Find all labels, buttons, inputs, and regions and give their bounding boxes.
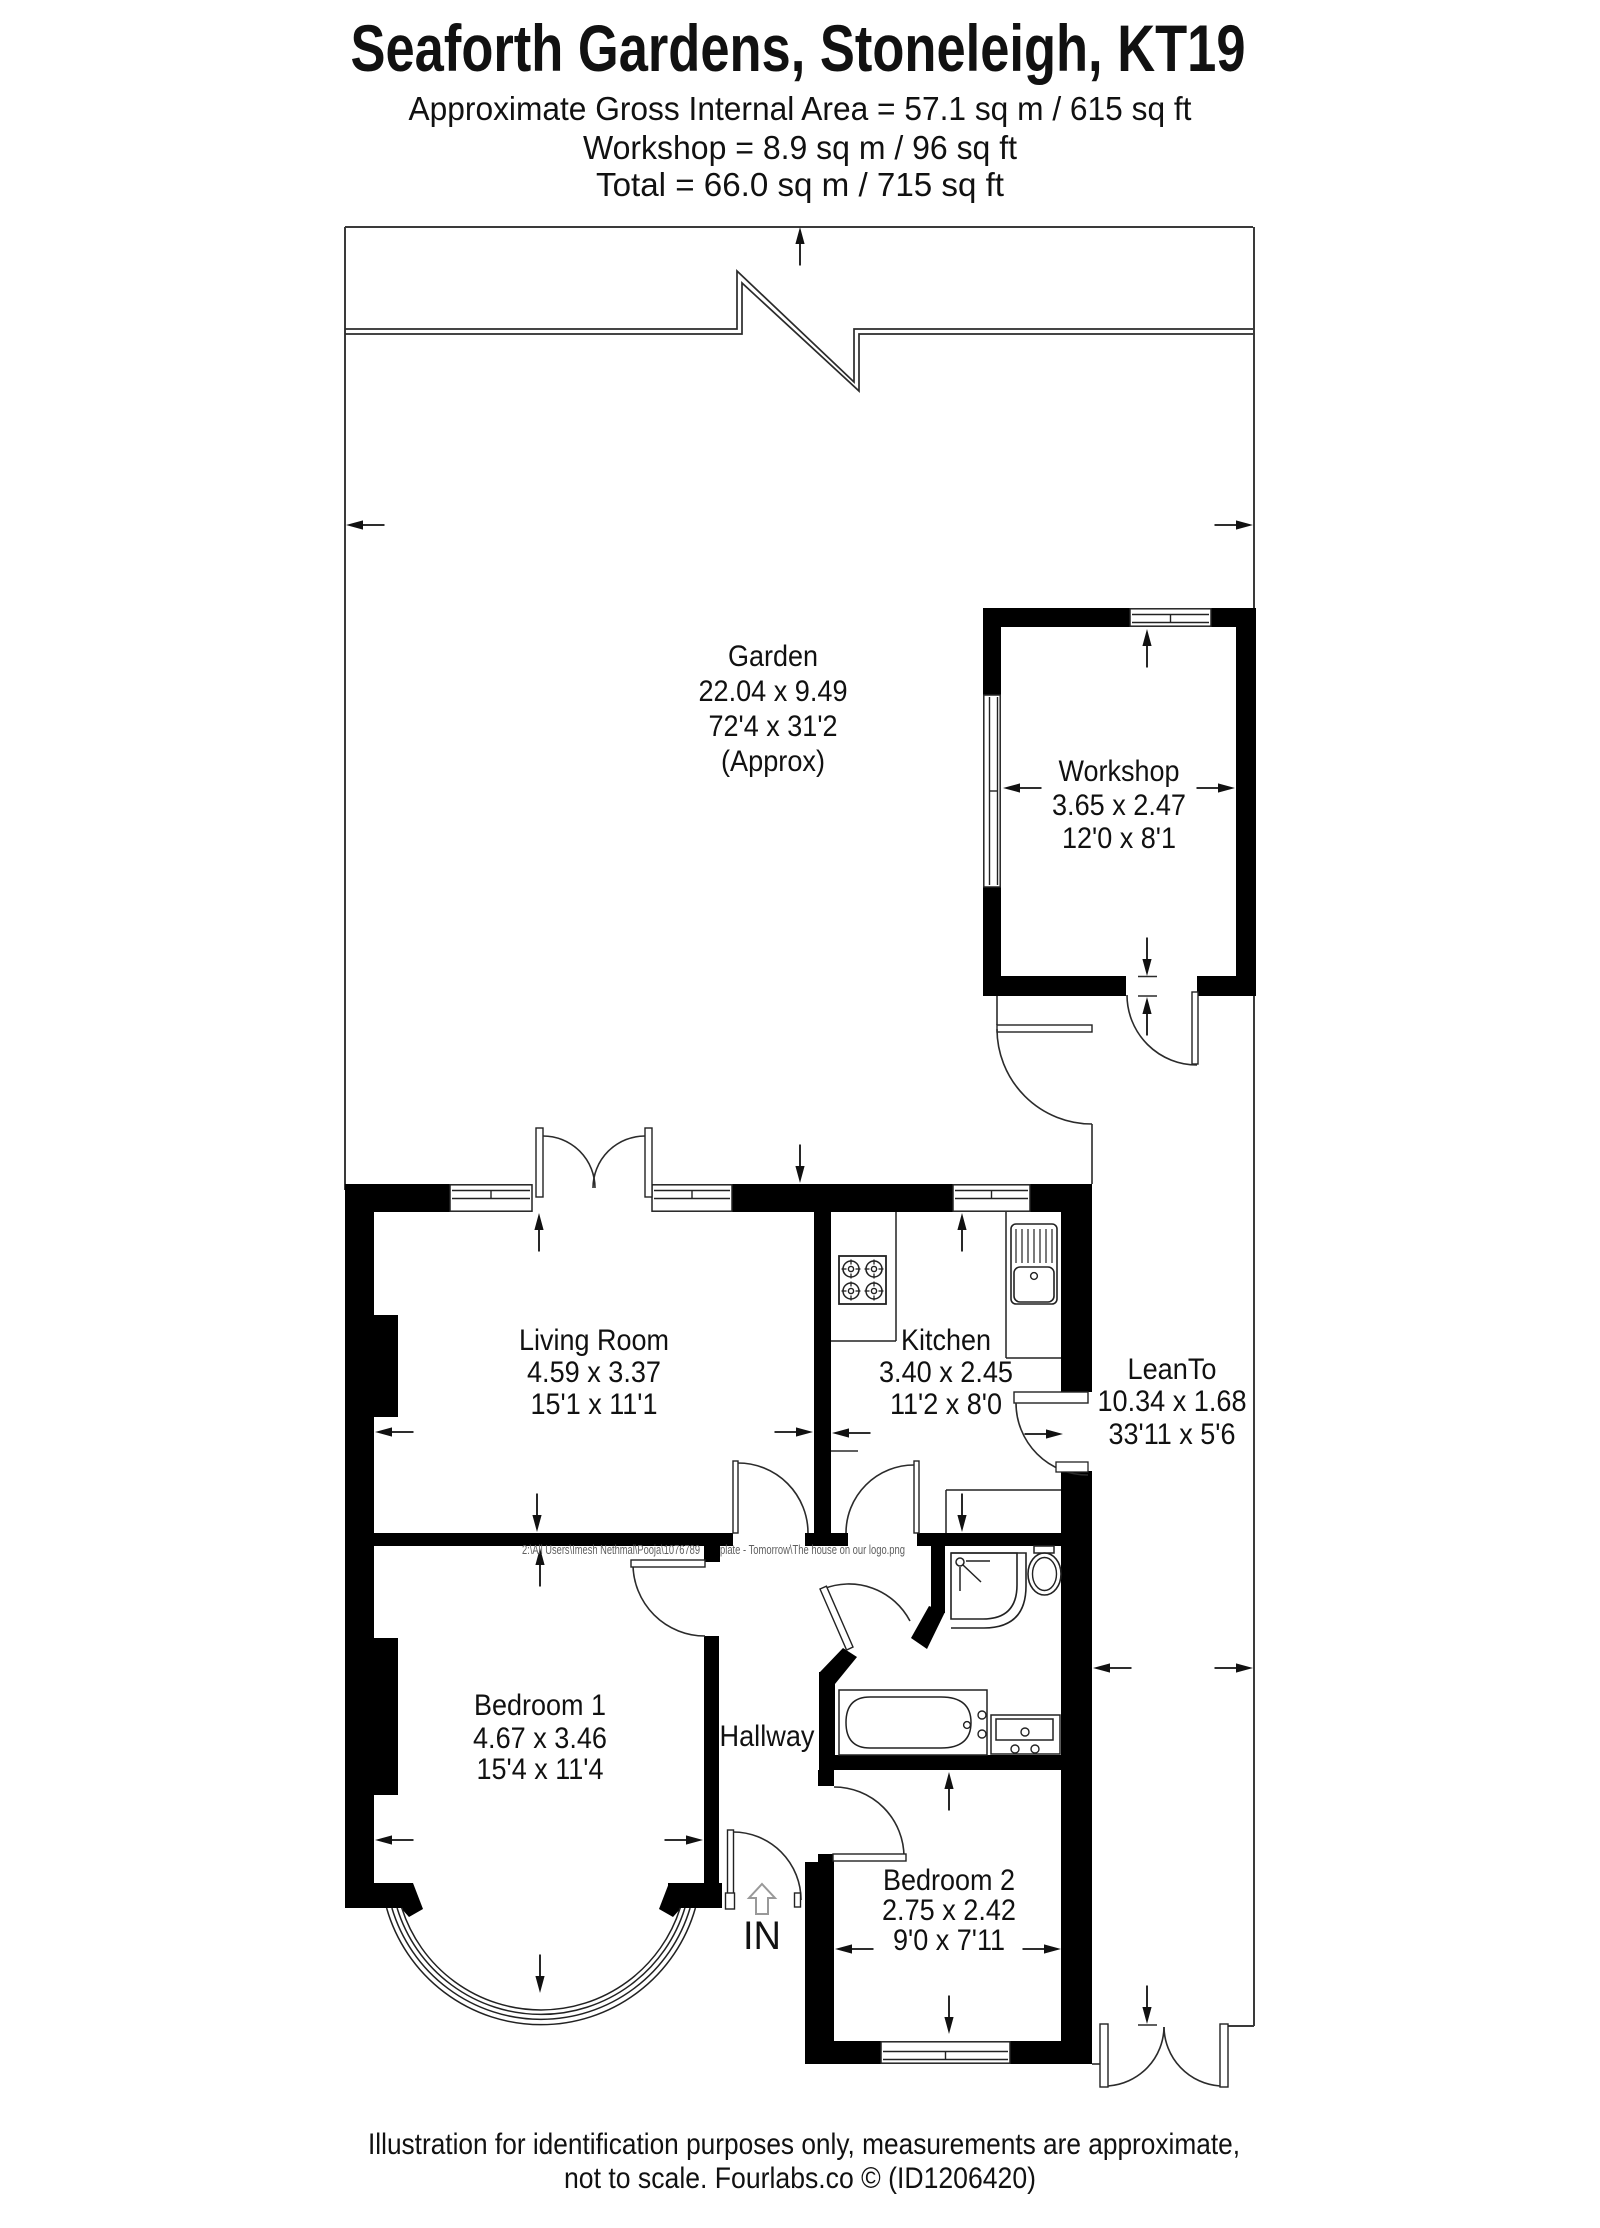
svg-text:Total = 66.0 sq m / 715 sq ft: Total = 66.0 sq m / 715 sq ft — [596, 166, 1004, 203]
svg-text:33'11 x 5'6: 33'11 x 5'6 — [1109, 1418, 1236, 1451]
svg-text:LeanTo: LeanTo — [1128, 1353, 1217, 1386]
svg-text:3.65 x 2.47: 3.65 x 2.47 — [1052, 789, 1186, 822]
svg-text:12'0 x 8'1: 12'0 x 8'1 — [1062, 822, 1176, 855]
svg-text:11'2 x 8'0: 11'2 x 8'0 — [890, 1388, 1002, 1421]
svg-text:Kitchen: Kitchen — [901, 1324, 991, 1357]
svg-text:Workshop: Workshop — [1059, 755, 1180, 788]
svg-text:4.59 x 3.37: 4.59 x 3.37 — [527, 1356, 661, 1389]
svg-text:Living Room: Living Room — [519, 1324, 669, 1357]
svg-text:Seaforth Gardens, Stoneleigh,: Seaforth Gardens, Stoneleigh, KT19 — [351, 11, 1246, 85]
svg-text:22.04 x 9.49: 22.04 x 9.49 — [699, 675, 848, 708]
svg-text:15'4 x 11'4: 15'4 x 11'4 — [477, 1753, 604, 1786]
svg-text:IN: IN — [743, 1914, 781, 1958]
svg-text:15'1 x 11'1: 15'1 x 11'1 — [531, 1388, 658, 1421]
svg-text:Workshop = 8.9 sq m / 96 sq ft: Workshop = 8.9 sq m / 96 sq ft — [583, 129, 1017, 166]
svg-text:2:\All Users\Imesh Nethmal\Poo: 2:\All Users\Imesh Nethmal\Pooja\1076789 — [522, 1543, 700, 1557]
svg-text:Garden: Garden — [728, 640, 818, 673]
svg-text:(Approx): (Approx) — [721, 745, 825, 778]
svg-text:2.75 x 2.42: 2.75 x 2.42 — [882, 1894, 1016, 1927]
svg-text:9'0 x 7'11: 9'0 x 7'11 — [893, 1924, 1005, 1957]
svg-text:Hallway: Hallway — [720, 1720, 815, 1753]
svg-text:72'4 x 31'2: 72'4 x 31'2 — [709, 710, 838, 743]
svg-text:4.67 x 3.46: 4.67 x 3.46 — [473, 1722, 607, 1755]
svg-text:plate - Tomorrow\The house on: plate - Tomorrow\The house on our logo.p… — [720, 1543, 905, 1557]
svg-text:Bedroom 2: Bedroom 2 — [883, 1864, 1015, 1897]
svg-text:Bedroom 1: Bedroom 1 — [474, 1689, 606, 1722]
svg-text:10.34 x 1.68: 10.34 x 1.68 — [1098, 1385, 1247, 1418]
svg-text:Approximate Gross Internal Are: Approximate Gross Internal Area = 57.1 s… — [409, 90, 1192, 127]
svg-text:Illustration for identificatio: Illustration for identification purposes… — [368, 2128, 1240, 2161]
svg-text:not to scale. Fourlabs.co © (: not to scale. Fourlabs.co © (ID1206420) — [564, 2162, 1036, 2195]
svg-text:3.40 x 2.45: 3.40 x 2.45 — [879, 1356, 1013, 1389]
